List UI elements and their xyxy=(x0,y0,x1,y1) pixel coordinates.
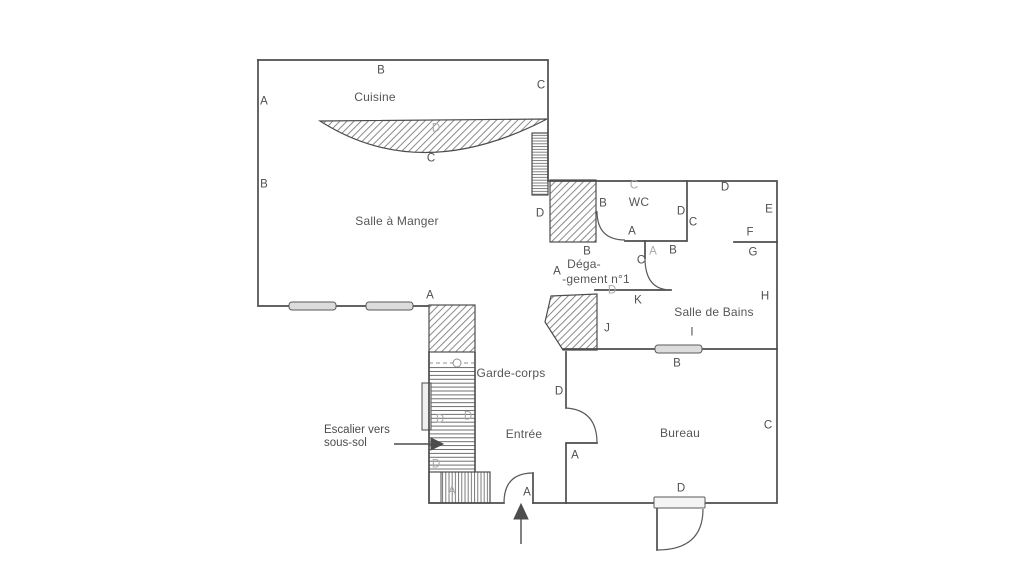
plan-letter: C xyxy=(427,153,435,165)
plan-letter: A xyxy=(260,96,268,108)
stairs-note-line1: Escalier vers xyxy=(324,424,390,437)
plan-letter: K xyxy=(634,295,642,307)
stairs-note: Escalier vers sous-sol xyxy=(324,424,390,450)
floor-plan-drawing xyxy=(0,0,1024,576)
plan-letter: I xyxy=(690,327,693,339)
plan-letter: B xyxy=(669,245,677,257)
plan-letter: D xyxy=(721,182,729,194)
radiators xyxy=(289,302,705,508)
plan-letter: A xyxy=(628,226,636,238)
plan-letter: D xyxy=(677,206,685,218)
plan-letter: D xyxy=(608,285,616,297)
plan-letter: A xyxy=(426,290,434,302)
plan-letter: A xyxy=(649,246,657,258)
plan-letter: F xyxy=(746,227,753,239)
room-label: -gement n°1 xyxy=(562,273,630,285)
room-label: Salle à Manger xyxy=(355,215,439,227)
plan-letter: C xyxy=(637,255,645,267)
plan-letter: D xyxy=(432,459,440,471)
plan-letter: D xyxy=(464,411,472,423)
plan-letter: D xyxy=(677,483,685,495)
flue-hatch xyxy=(532,133,548,195)
wall-entree-bureau xyxy=(566,352,597,503)
exterior-door-arc xyxy=(657,509,703,550)
plan-letter: H xyxy=(761,291,769,303)
outer-wall-left xyxy=(258,60,428,306)
plan-letter: D xyxy=(436,414,444,426)
room-label: Déga- xyxy=(567,258,601,270)
radiator xyxy=(289,302,336,310)
plan-letter: A xyxy=(553,266,561,278)
room-label: Salle de Bains xyxy=(674,306,754,318)
plan-letter: A xyxy=(448,486,456,498)
room-label: Bureau xyxy=(660,427,700,439)
plan-letter: B xyxy=(583,246,591,258)
bureau-door-arc xyxy=(566,408,597,443)
plan-letter: D xyxy=(536,208,544,220)
exterior-door-frame xyxy=(654,497,705,508)
plan-letter: J xyxy=(604,323,610,335)
stairs-note-line2: sous-sol xyxy=(324,437,390,450)
radiator xyxy=(655,345,702,353)
room-label: Cuisine xyxy=(354,91,395,103)
room-label: Entrée xyxy=(506,428,543,440)
room-label: WC xyxy=(629,196,649,208)
plan-letter: A xyxy=(523,487,531,499)
plan-letter: E xyxy=(765,204,773,216)
radiator xyxy=(366,302,413,310)
section-circle-icon xyxy=(453,359,461,367)
plan-letter: D xyxy=(555,386,563,398)
plan-letter: B xyxy=(377,65,385,77)
floor-plan: CuisineSalle à MangerWCDéga--gement n°1S… xyxy=(0,0,1024,576)
wc-door-arc xyxy=(597,211,625,240)
plan-letter: G xyxy=(749,247,758,259)
plan-letter: C xyxy=(630,180,638,192)
plan-letter: B xyxy=(673,358,681,370)
entrance-arrow-icon xyxy=(514,504,528,519)
wall-mass-wc xyxy=(550,180,596,242)
degagement-door-arc xyxy=(645,258,671,290)
wall-mass-stairs xyxy=(429,305,475,352)
hatched-areas xyxy=(320,119,597,352)
plan-letter: C xyxy=(764,420,772,432)
room-label: Garde-corps xyxy=(477,367,546,379)
plan-letter: A xyxy=(571,450,579,462)
plan-letter: D xyxy=(432,123,440,135)
plan-letter: C xyxy=(537,80,545,92)
plan-letter: C xyxy=(689,217,697,229)
plan-letter: B xyxy=(599,198,607,210)
plan-letter: B xyxy=(260,179,268,191)
wall-mass-degagement xyxy=(545,294,597,350)
